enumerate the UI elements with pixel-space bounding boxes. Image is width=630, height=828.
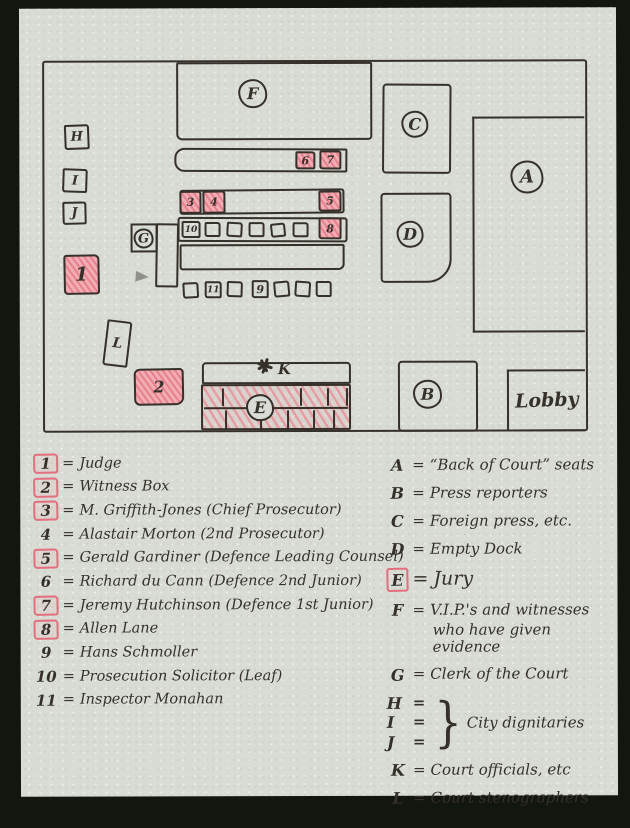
legend-text: Richard du Cann (Defence 2nd Junior) <box>80 574 362 589</box>
legend-text: Inspector Monahan <box>80 693 224 708</box>
legend-text: Alastair Morton (2nd Prosecutor) <box>79 527 324 542</box>
label-k: K <box>278 360 291 378</box>
vip-witness-area-f: F <box>176 62 372 141</box>
legend-key: A <box>386 456 408 475</box>
jury-divider <box>222 388 224 406</box>
legend-key: F <box>387 601 409 620</box>
seat-7: 7 <box>319 150 341 169</box>
seat-empty <box>294 281 311 298</box>
legend-item: B = Press reporters <box>386 483 614 503</box>
empty-dock-box-d: D <box>380 193 451 283</box>
legend-text: Press reporters <box>430 484 548 502</box>
lobby-label: Lobby <box>515 388 579 412</box>
legend-text: Jury <box>433 569 473 591</box>
seat-6: 6 <box>295 151 315 169</box>
foreign-press-box-c: C <box>382 84 452 174</box>
legend-text: Judge <box>79 456 121 471</box>
legend-number: 6 <box>33 572 58 592</box>
press-box-b: B <box>398 361 478 432</box>
seat-11: 11 <box>205 281 222 298</box>
seat-empty <box>226 281 243 298</box>
seat-box-j: J <box>62 201 86 224</box>
legend-text: Hans Schmoller <box>80 645 197 660</box>
seat-box-h: H <box>64 124 90 150</box>
area-d-circle: D <box>397 221 424 248</box>
legend-key: J <box>387 732 409 752</box>
jury-divider <box>333 410 335 429</box>
legend-text: Court officials, etc <box>431 761 571 779</box>
legend-text: Gerald Gardiner (Defence Leading Counsel… <box>80 550 404 565</box>
legend-key: E <box>386 568 408 592</box>
legend-number: 3 <box>33 501 58 521</box>
jury-divider <box>327 388 329 406</box>
area-f-circle: F <box>238 79 267 108</box>
legend-item: 7 = Jeremy Hutchinson (Defence 1st Junio… <box>34 593 379 618</box>
seat-box-i: I <box>62 168 88 193</box>
legend-text: Prosecution Solicitor (Leaf) <box>80 669 282 684</box>
legend-key: L <box>387 789 409 808</box>
seat-9: 9 <box>252 280 269 298</box>
seat-3: 3 <box>179 191 201 214</box>
legend-text-line2: who have given evidence <box>387 621 615 656</box>
seat-empty <box>182 282 199 299</box>
clerk-box-g: G <box>131 223 158 252</box>
legend-number: 10 <box>34 667 59 687</box>
legend-key: D <box>386 540 408 559</box>
legend-text: Allen Lane <box>80 622 159 637</box>
clerk-g-circle: G <box>134 228 154 248</box>
legend-item: D = Empty Dock <box>386 539 614 559</box>
legend-item: K = Court officials, etc <box>387 760 615 780</box>
scribble-mark <box>256 356 274 374</box>
seat-4: 4 <box>202 190 225 213</box>
jury-box-e: E <box>201 384 351 430</box>
seat-empty <box>316 281 332 297</box>
jury-divider <box>346 388 348 406</box>
legend-text: M. Griffith-Jones (Chief Prosecutor) <box>79 503 341 518</box>
bench-row-3: 10 8 <box>178 217 348 242</box>
seat-5: 5 <box>318 190 341 211</box>
legend-item: A = “Back of Court” seats <box>386 455 614 475</box>
legend-number: 2 <box>33 477 58 497</box>
legend-text: Foreign press, etc. <box>430 512 572 530</box>
seat-empty <box>293 222 309 237</box>
legend-item: 3 = M. Griffith-Jones (Chief Prosecutor) <box>33 498 378 523</box>
bench-row-2: 3 4 5 <box>179 188 344 215</box>
area-c-circle: C <box>401 111 428 138</box>
legend-key: C <box>386 512 408 531</box>
legend-numbers: 1 = Judge 2 = Witness Box 3 = M. Griffit… <box>33 451 379 712</box>
seat-empty <box>273 280 290 297</box>
photo-of-sketch: { "colors": { "bg": "#11160f", "paper": … <box>0 0 630 828</box>
seat-8: 8 <box>319 217 342 239</box>
legend-key: K <box>387 761 409 780</box>
legend-text: City dignitaries <box>467 713 585 731</box>
area-b-circle: B <box>413 380 442 409</box>
jury-bench-line <box>204 407 348 410</box>
legend-number: 11 <box>34 690 59 710</box>
jury-divider <box>287 410 289 429</box>
jury-e-circle: E <box>246 394 274 421</box>
legend-item: C = Foreign press, etc. <box>386 511 614 531</box>
legend-item: E = Jury <box>386 567 614 592</box>
legend-item: 9 = Hans Schmoller <box>34 640 379 665</box>
legend-item: 2 = Witness Box <box>33 475 378 500</box>
lobby-box: Lobby <box>507 369 585 431</box>
legend-item-city-dignitaries: H= I= J= } City dignitaries <box>387 693 615 752</box>
legend-text: Witness Box <box>79 480 169 495</box>
legend-item: 8 = Allen Lane <box>34 617 379 642</box>
legend-text: Clerk of the Court <box>430 666 568 684</box>
legend-number: 5 <box>33 548 58 568</box>
legend-item: 1 = Judge <box>33 451 378 476</box>
paper-sheet: F H I J 6 7 3 4 5 10 8 11 9 G 1 L 2 <box>19 7 618 797</box>
legend-letters: A = “Back of Court” seats B = Press repo… <box>386 455 615 817</box>
jury-divider <box>300 388 302 406</box>
legend-number: 4 <box>33 525 58 545</box>
court-officials-strip-k <box>202 362 351 384</box>
seat-empty <box>270 222 286 237</box>
legend-key: B <box>386 484 408 503</box>
legend-text: Court stenographers <box>431 789 589 807</box>
legend-key: G <box>387 665 409 684</box>
legend-text: “Back of Court” seats <box>430 456 594 474</box>
legend-item: 5 = Gerald Gardiner (Defence Leading Cou… <box>33 546 378 571</box>
jury-divider <box>225 410 227 429</box>
legend-text: Empty Dock <box>430 540 523 557</box>
legend-key: H <box>387 693 409 713</box>
seat-empty <box>226 222 243 238</box>
legend-number: 1 <box>33 453 58 473</box>
legend-item: F = V.I.P.'s and witnesses who have give… <box>387 600 615 656</box>
seat-10: 10 <box>182 221 201 238</box>
witness-box-2: 2 <box>134 368 185 406</box>
legend-item: L = Court stenographers <box>387 788 615 808</box>
legend-number: 7 <box>33 595 58 615</box>
brace-glyph: } <box>434 693 462 751</box>
seat-empty <box>249 222 265 237</box>
legend-item: 6 = Richard du Cann (Defence 2nd Junior) <box>33 569 378 594</box>
legend-item: 10 = Prosecution Solicitor (Leaf) <box>34 664 379 689</box>
legend-item: G = Clerk of the Court <box>387 665 615 685</box>
jury-divider <box>313 410 315 429</box>
area-a-circle: A <box>510 160 543 193</box>
legend-text: V.I.P.'s and witnesses <box>430 601 589 619</box>
bench-row-1: 6 7 <box>174 148 347 173</box>
counsel-table <box>180 244 345 270</box>
legend-number: 9 <box>34 643 59 663</box>
seat-empty <box>205 222 221 237</box>
legend-key: I <box>387 713 409 733</box>
legend-item: 4 = Alastair Morton (2nd Prosecutor) <box>33 522 378 547</box>
back-of-court-box-a: A <box>472 116 585 332</box>
legend-number: 8 <box>33 619 58 639</box>
legend-item: 11 = Inspector Monahan <box>34 688 379 713</box>
judge-box-1: 1 <box>63 254 100 295</box>
arrow-mark <box>135 271 149 283</box>
legend-text: Jeremy Hutchinson (Defence 1st Junior) <box>80 598 374 613</box>
clerk-desk <box>155 223 179 287</box>
